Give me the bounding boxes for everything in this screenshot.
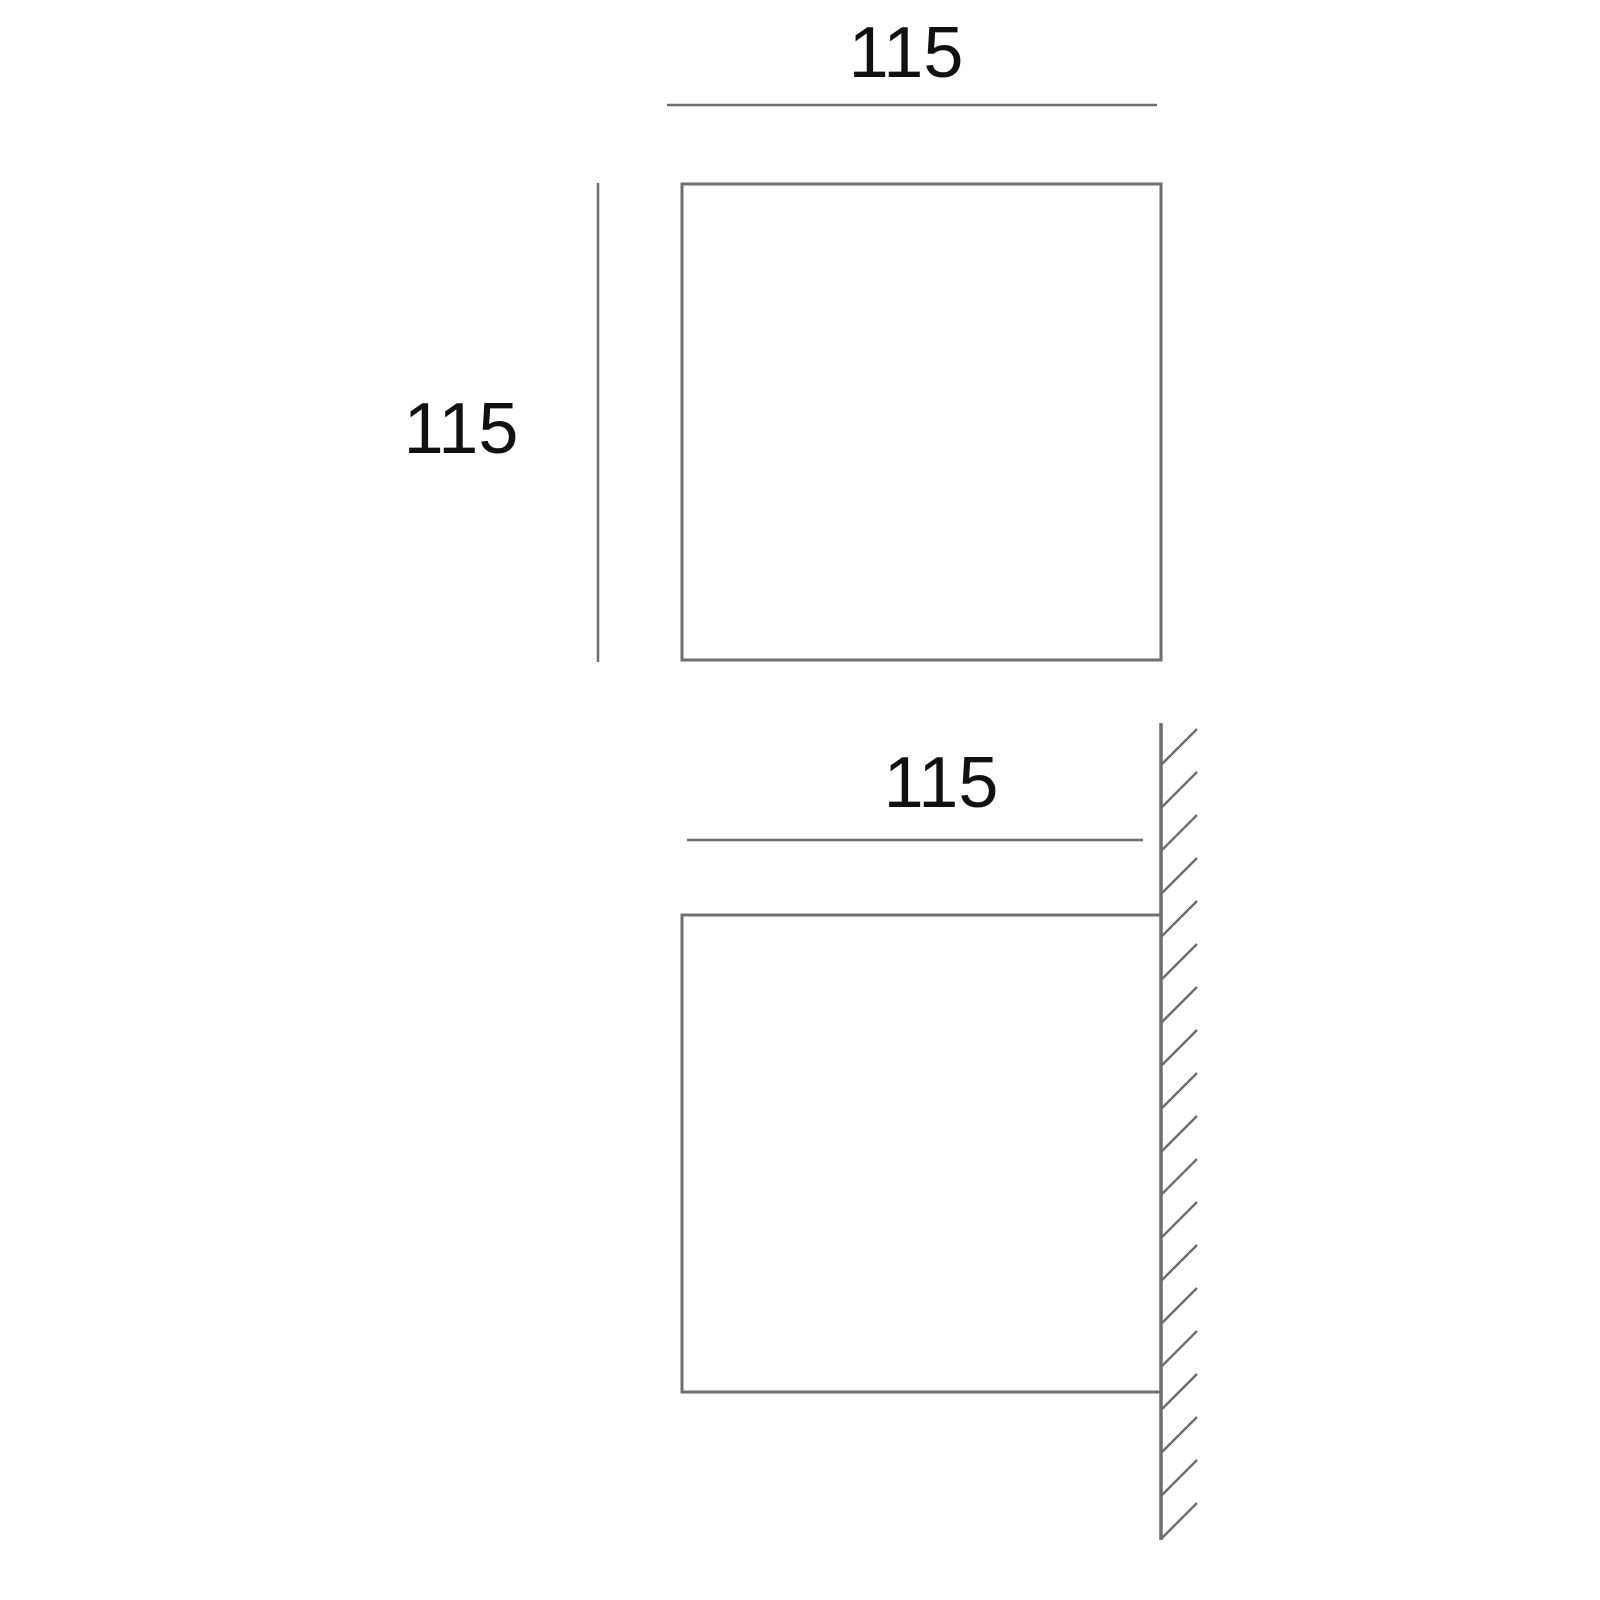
wall-hatch-mark [1161,1374,1197,1410]
wall-hatch-mark [1161,815,1197,851]
front-view: 115 [682,723,1197,1540]
wall-hatch-mark [1161,1073,1197,1109]
top-height-dimension-label: 115 [404,389,519,469]
wall-hatch-mark [1161,1245,1197,1281]
wall-hatch-mark [1161,901,1197,937]
wall-hatch-mark [1161,1030,1197,1066]
wall-hatch-mark [1161,1331,1197,1367]
wall-hatch-mark [1161,1116,1197,1152]
wall-hatch-mark [1161,1417,1197,1453]
top-width-dimension-label: 115 [849,13,964,93]
wall-hatch-mark [1161,858,1197,894]
front-width-dimension-label: 115 [884,743,999,823]
wall-hatch-mark [1161,944,1197,980]
wall-hatch-mark [1161,1460,1197,1496]
dimension-drawing: 115 115 115 [0,0,1600,1600]
drawing-canvas: 115 115 115 [0,0,1600,1600]
top-view-square [682,184,1161,660]
wall-hatch-mark [1161,1159,1197,1195]
wall-hatch-mark [1161,1202,1197,1238]
wall-hatching [1161,729,1197,1539]
wall-hatch-mark [1161,987,1197,1023]
wall-hatch-mark [1161,772,1197,808]
front-view-square [682,915,1161,1392]
wall-hatch-mark [1161,1503,1197,1539]
wall-hatch-mark [1161,729,1197,765]
top-view: 115 115 [404,13,1161,662]
wall-hatch-mark [1161,1288,1197,1324]
